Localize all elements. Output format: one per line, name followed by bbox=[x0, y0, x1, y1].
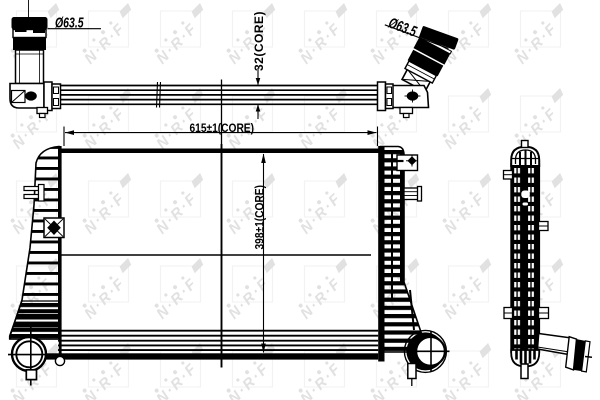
svg-text:615±1(CORE): 615±1(CORE) bbox=[190, 123, 255, 136]
svg-text:398±1(CORE): 398±1(CORE) bbox=[254, 185, 267, 250]
svg-text:32(CORE): 32(CORE) bbox=[252, 11, 266, 71]
